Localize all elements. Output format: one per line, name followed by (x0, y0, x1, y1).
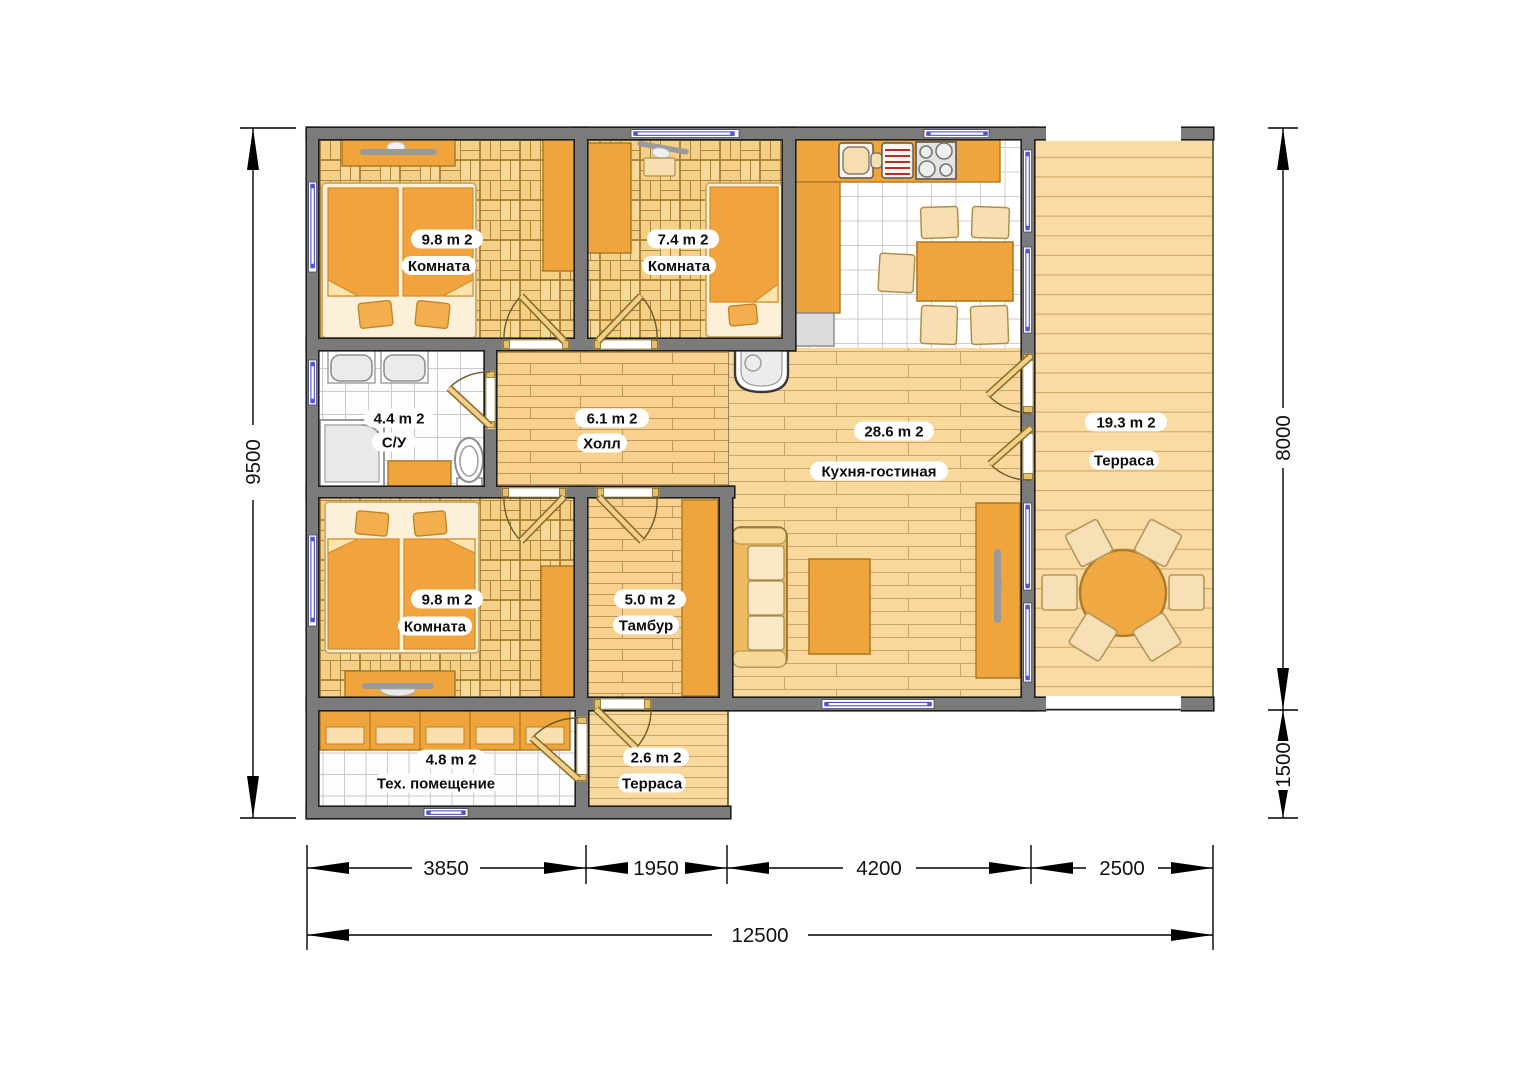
svg-text:Комната: Комната (648, 258, 711, 275)
svg-text:8000: 8000 (1272, 415, 1295, 461)
svg-text:Комната: Комната (404, 619, 467, 636)
svg-text:6.1 m 2: 6.1 m 2 (587, 411, 638, 428)
svg-text:Холл: Холл (583, 436, 621, 453)
svg-text:Комната: Комната (408, 258, 471, 275)
svg-text:1500: 1500 (1272, 742, 1295, 788)
svg-text:Тамбур: Тамбур (619, 618, 673, 635)
svg-text:4.8 m 2: 4.8 m 2 (426, 752, 477, 769)
svg-text:4200: 4200 (856, 857, 902, 880)
svg-text:7.4 m 2: 7.4 m 2 (658, 232, 709, 249)
svg-text:1950: 1950 (633, 857, 679, 880)
svg-text:Терраса: Терраса (1094, 453, 1155, 470)
svg-text:9.8 m 2: 9.8 m 2 (422, 592, 473, 609)
svg-text:9.8 m 2: 9.8 m 2 (422, 232, 473, 249)
svg-text:5.0 m 2: 5.0 m 2 (625, 592, 676, 609)
svg-text:Тех. помещение: Тех. помещение (377, 776, 495, 793)
svg-text:Терраса: Терраса (622, 776, 683, 793)
svg-text:4.4 m 2: 4.4 m 2 (374, 411, 425, 428)
svg-text:Кухня-гостиная: Кухня-гостиная (822, 464, 937, 481)
svg-text:С/У: С/У (382, 435, 407, 452)
svg-text:2500: 2500 (1099, 857, 1145, 880)
svg-text:28.6 m 2: 28.6 m 2 (864, 424, 923, 441)
svg-text:19.3 m 2: 19.3 m 2 (1096, 415, 1155, 432)
svg-text:12500: 12500 (731, 924, 788, 947)
svg-text:3850: 3850 (423, 857, 469, 880)
svg-text:2.6 m 2: 2.6 m 2 (631, 750, 682, 767)
svg-text:9500: 9500 (242, 439, 265, 485)
